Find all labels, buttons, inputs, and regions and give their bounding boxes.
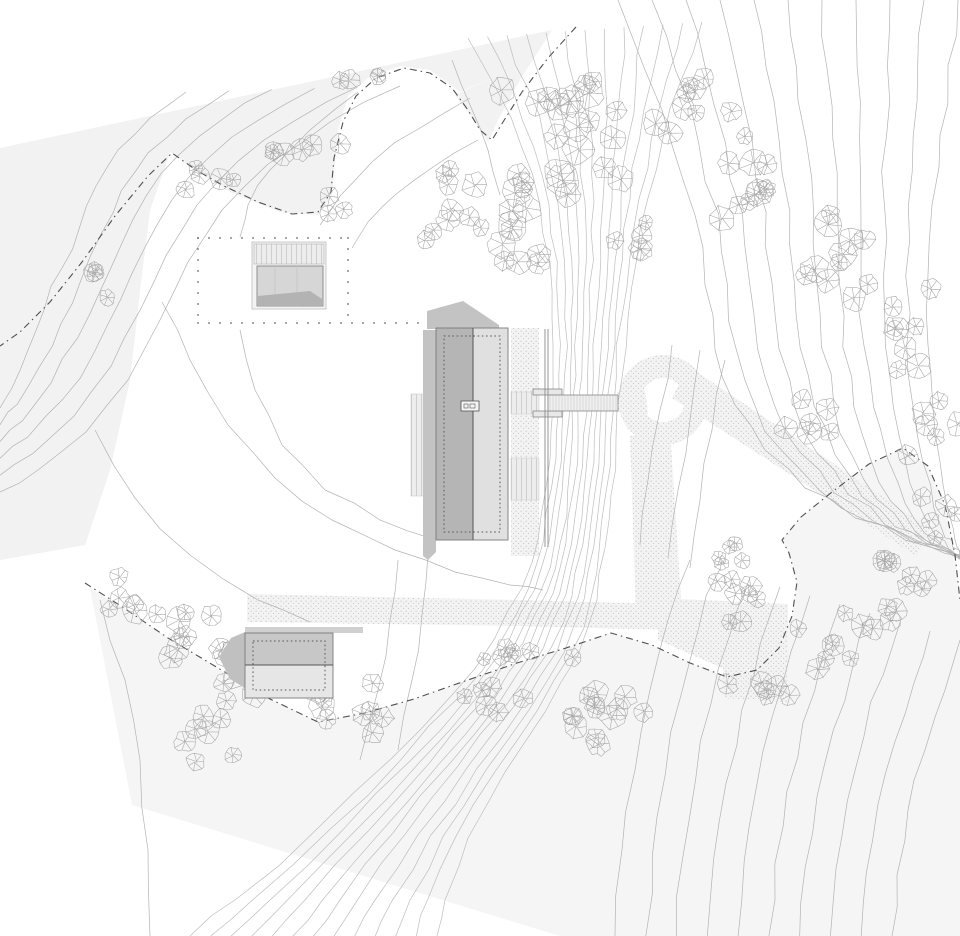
fence-dot xyxy=(362,322,364,324)
upper-building-deck xyxy=(254,244,324,264)
fence-dot xyxy=(274,322,276,324)
tree-symbol xyxy=(889,360,906,379)
fence-dot xyxy=(347,314,349,316)
tree-symbol xyxy=(741,193,757,211)
fence-dot xyxy=(329,237,331,239)
fence-dot xyxy=(230,237,232,239)
tree-symbol xyxy=(792,389,811,408)
fence-dot xyxy=(197,292,199,294)
bridge-connector xyxy=(617,390,648,414)
contour-line xyxy=(240,330,430,538)
driveway-vertical xyxy=(630,430,682,616)
tree-symbol xyxy=(859,274,878,295)
tree-symbol xyxy=(494,251,514,272)
tree-symbol xyxy=(563,112,593,141)
fence-dot xyxy=(230,322,232,324)
tree-symbol xyxy=(501,218,522,239)
wall-flange xyxy=(533,389,562,395)
fence-dot xyxy=(285,322,287,324)
tree-symbol xyxy=(715,556,729,571)
tree-symbol xyxy=(436,165,452,183)
tree-symbol xyxy=(515,181,533,198)
wall-flange xyxy=(533,411,562,417)
tree-symbol xyxy=(921,278,941,299)
tree-symbol xyxy=(556,183,582,208)
tree-symbol xyxy=(688,105,705,122)
fence-dot xyxy=(347,292,349,294)
gable-shadow xyxy=(427,301,499,329)
fence-dot xyxy=(263,237,265,239)
fence-dot xyxy=(347,237,349,239)
tree-symbol xyxy=(477,653,491,666)
fence-dot xyxy=(219,322,221,324)
fence-dot xyxy=(351,322,353,324)
fence-dot xyxy=(318,322,320,324)
fence-dot xyxy=(417,322,419,324)
fence-dot xyxy=(241,322,243,324)
tree-symbol xyxy=(710,205,734,230)
fence-dot xyxy=(197,237,199,239)
fence-dot xyxy=(208,237,210,239)
fence-dot xyxy=(296,322,298,324)
barn-roof-north xyxy=(245,633,333,665)
tree-symbol xyxy=(335,202,353,219)
tree-symbol xyxy=(149,605,166,623)
tree-symbol xyxy=(947,412,960,437)
roof-west-slope xyxy=(436,328,473,540)
tree-symbol xyxy=(606,101,627,121)
fence-dot xyxy=(197,281,199,283)
fence-dot xyxy=(197,248,199,250)
tree-symbol xyxy=(720,103,742,123)
side-shadow xyxy=(423,330,436,560)
fence-dot xyxy=(307,322,309,324)
fence-dot xyxy=(347,303,349,305)
fence-dot xyxy=(263,322,265,324)
tree-symbol xyxy=(462,172,487,198)
fence-dot xyxy=(340,237,342,239)
fence-dot xyxy=(241,237,243,239)
fence-dot xyxy=(347,259,349,261)
strip-block-2 xyxy=(511,458,539,500)
fence-dot xyxy=(197,259,199,261)
fence-dot xyxy=(318,237,320,239)
tree-symbol xyxy=(796,265,818,286)
tree-symbol xyxy=(740,576,763,596)
fence-dot xyxy=(406,322,408,324)
fence-dot xyxy=(395,322,397,324)
tree-symbol xyxy=(176,181,194,197)
tree-symbol xyxy=(110,567,128,587)
tree-symbol xyxy=(708,573,727,591)
contour-line xyxy=(320,98,470,225)
fence-dot xyxy=(208,322,210,324)
fence-dot xyxy=(384,322,386,324)
tree-symbol xyxy=(821,423,839,440)
tree-symbol xyxy=(362,674,383,692)
tree-symbol xyxy=(692,68,713,89)
contour-line xyxy=(352,140,478,248)
tree-symbol xyxy=(724,571,740,589)
tree-symbol xyxy=(579,109,600,132)
fence-dot xyxy=(285,237,287,239)
tree-symbol xyxy=(512,172,534,194)
tree-symbol xyxy=(736,128,753,145)
fence-dot xyxy=(274,237,276,239)
footbridge-deck xyxy=(548,395,618,411)
tree-symbol xyxy=(167,607,191,635)
tree-symbol xyxy=(513,195,541,223)
tree-symbol xyxy=(178,604,195,620)
fence-dot xyxy=(252,237,254,239)
fence-dot xyxy=(252,322,254,324)
tree-symbol xyxy=(905,353,931,378)
tree-symbol xyxy=(110,587,130,609)
tree-symbol xyxy=(439,176,459,196)
fence-dot xyxy=(347,270,349,272)
fence-dot xyxy=(197,303,199,305)
fence-dot xyxy=(197,314,199,316)
tree-symbol xyxy=(712,551,726,565)
roof-east-slope xyxy=(473,328,508,540)
fence-dot xyxy=(296,237,298,239)
tree-symbol xyxy=(201,605,221,626)
barn-edge-bar xyxy=(245,627,363,633)
tree-symbol xyxy=(734,553,750,569)
site-plan xyxy=(0,0,960,936)
fence-dot xyxy=(197,270,199,272)
east-terrace-strip xyxy=(511,328,539,556)
upper-building xyxy=(252,242,326,309)
tree-symbol xyxy=(757,154,777,175)
fence-dot xyxy=(329,322,331,324)
tree-symbol xyxy=(493,649,509,666)
fence-dot xyxy=(347,281,349,283)
fence-dot xyxy=(219,237,221,239)
tree-symbol xyxy=(544,124,570,150)
fence-dot xyxy=(347,248,349,250)
main-building xyxy=(411,301,508,560)
tree-symbol xyxy=(562,135,595,165)
tree-symbol xyxy=(460,207,480,227)
barn-roof-south xyxy=(245,665,333,698)
site-plan-svg xyxy=(0,0,960,936)
fence-dot xyxy=(340,322,342,324)
tree-symbol xyxy=(473,219,489,237)
fence-dot xyxy=(197,322,199,324)
tree-symbol xyxy=(884,296,902,316)
fence-dot xyxy=(307,237,309,239)
fence-dot xyxy=(373,322,375,324)
